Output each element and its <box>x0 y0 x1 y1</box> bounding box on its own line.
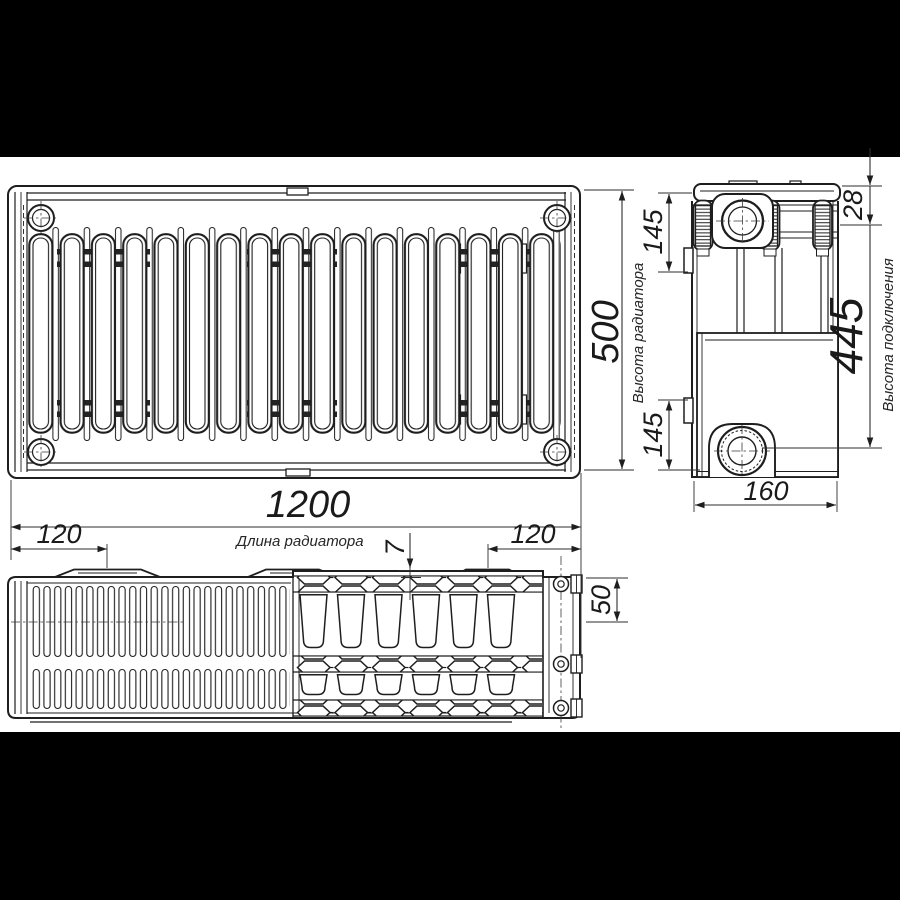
drawing-canvas: 500 Высота радиатора 1200 Длина радиатор… <box>0 0 900 900</box>
grille-slots-row1 <box>31 585 290 658</box>
radiator-technical-drawing: { "colors": { "backdrop": "#000000", "pa… <box>0 0 900 900</box>
dim-connection-height: 445 <box>820 297 872 374</box>
bottom-port <box>709 424 775 477</box>
dim-length: 1200 <box>266 484 351 526</box>
caption-length: Длина радиатора <box>234 533 363 550</box>
dim-tab-inset-right: 120 <box>510 519 555 549</box>
front-view <box>8 186 580 478</box>
section-fins <box>293 576 543 716</box>
dim-bracket-bottom: 145 <box>638 411 668 457</box>
dim-top-port-offset: 28 <box>838 190 868 221</box>
front-panel-slats <box>28 233 561 434</box>
top-port <box>712 194 773 248</box>
dim-panel-depth: 50 <box>586 585 616 615</box>
caption-connection: Высота подключения <box>880 258 897 411</box>
side-tab-top <box>684 248 693 273</box>
dim-depth: 160 <box>743 476 788 506</box>
top-view <box>8 556 582 728</box>
grille-slots-row2 <box>31 668 290 710</box>
side-tab-bottom <box>684 398 693 423</box>
dim-grille-step: 7 <box>380 540 410 556</box>
caption-height: Высота радиатора <box>630 263 647 404</box>
dim-tab-inset-left: 120 <box>36 519 81 549</box>
dim-height: 500 <box>585 300 627 363</box>
dim-bracket-top: 145 <box>638 208 668 254</box>
